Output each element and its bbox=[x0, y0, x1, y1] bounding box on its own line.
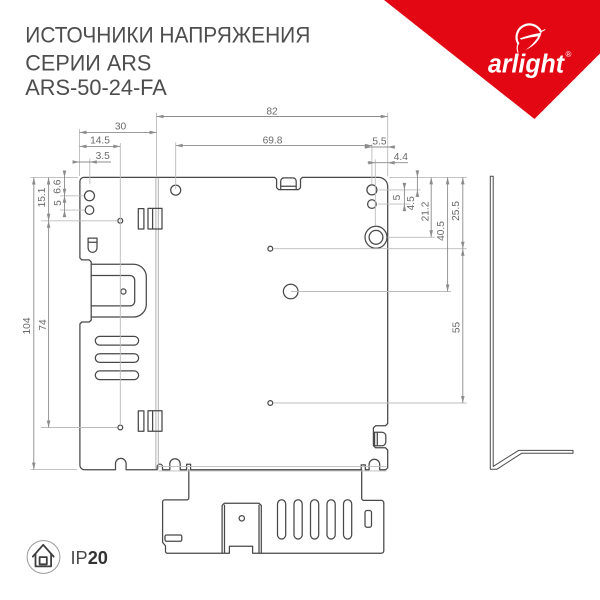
svg-text:5: 5 bbox=[392, 194, 403, 200]
svg-text:55: 55 bbox=[451, 322, 462, 334]
svg-text:82: 82 bbox=[266, 106, 278, 117]
svg-text:IP20: IP20 bbox=[71, 548, 108, 568]
svg-text:СЕРИИ ARS: СЕРИИ ARS bbox=[25, 51, 151, 76]
svg-text:4.5: 4.5 bbox=[406, 196, 417, 210]
svg-text:21.2: 21.2 bbox=[420, 201, 431, 221]
svg-text:®: ® bbox=[566, 50, 572, 59]
svg-text:40.5: 40.5 bbox=[436, 221, 447, 241]
svg-text:ИСТОЧНИКИ НАПРЯЖЕНИЯ: ИСТОЧНИКИ НАПРЯЖЕНИЯ bbox=[25, 23, 310, 48]
svg-text:74: 74 bbox=[38, 319, 49, 331]
svg-text:25.5: 25.5 bbox=[451, 201, 462, 221]
svg-text:30: 30 bbox=[115, 122, 127, 133]
svg-text:ARS-50-24-FA: ARS-50-24-FA bbox=[25, 75, 167, 100]
svg-text:14.5: 14.5 bbox=[90, 136, 110, 147]
svg-text:69.8: 69.8 bbox=[263, 136, 283, 147]
svg-text:15.1: 15.1 bbox=[37, 187, 48, 207]
svg-text:6.6: 6.6 bbox=[53, 179, 64, 193]
svg-text:4.4: 4.4 bbox=[394, 152, 408, 163]
svg-text:5.5: 5.5 bbox=[372, 137, 386, 148]
svg-text:arlight: arlight bbox=[488, 51, 565, 79]
svg-text:104: 104 bbox=[22, 317, 33, 334]
svg-text:5: 5 bbox=[53, 200, 64, 206]
svg-text:3.5: 3.5 bbox=[96, 151, 110, 162]
